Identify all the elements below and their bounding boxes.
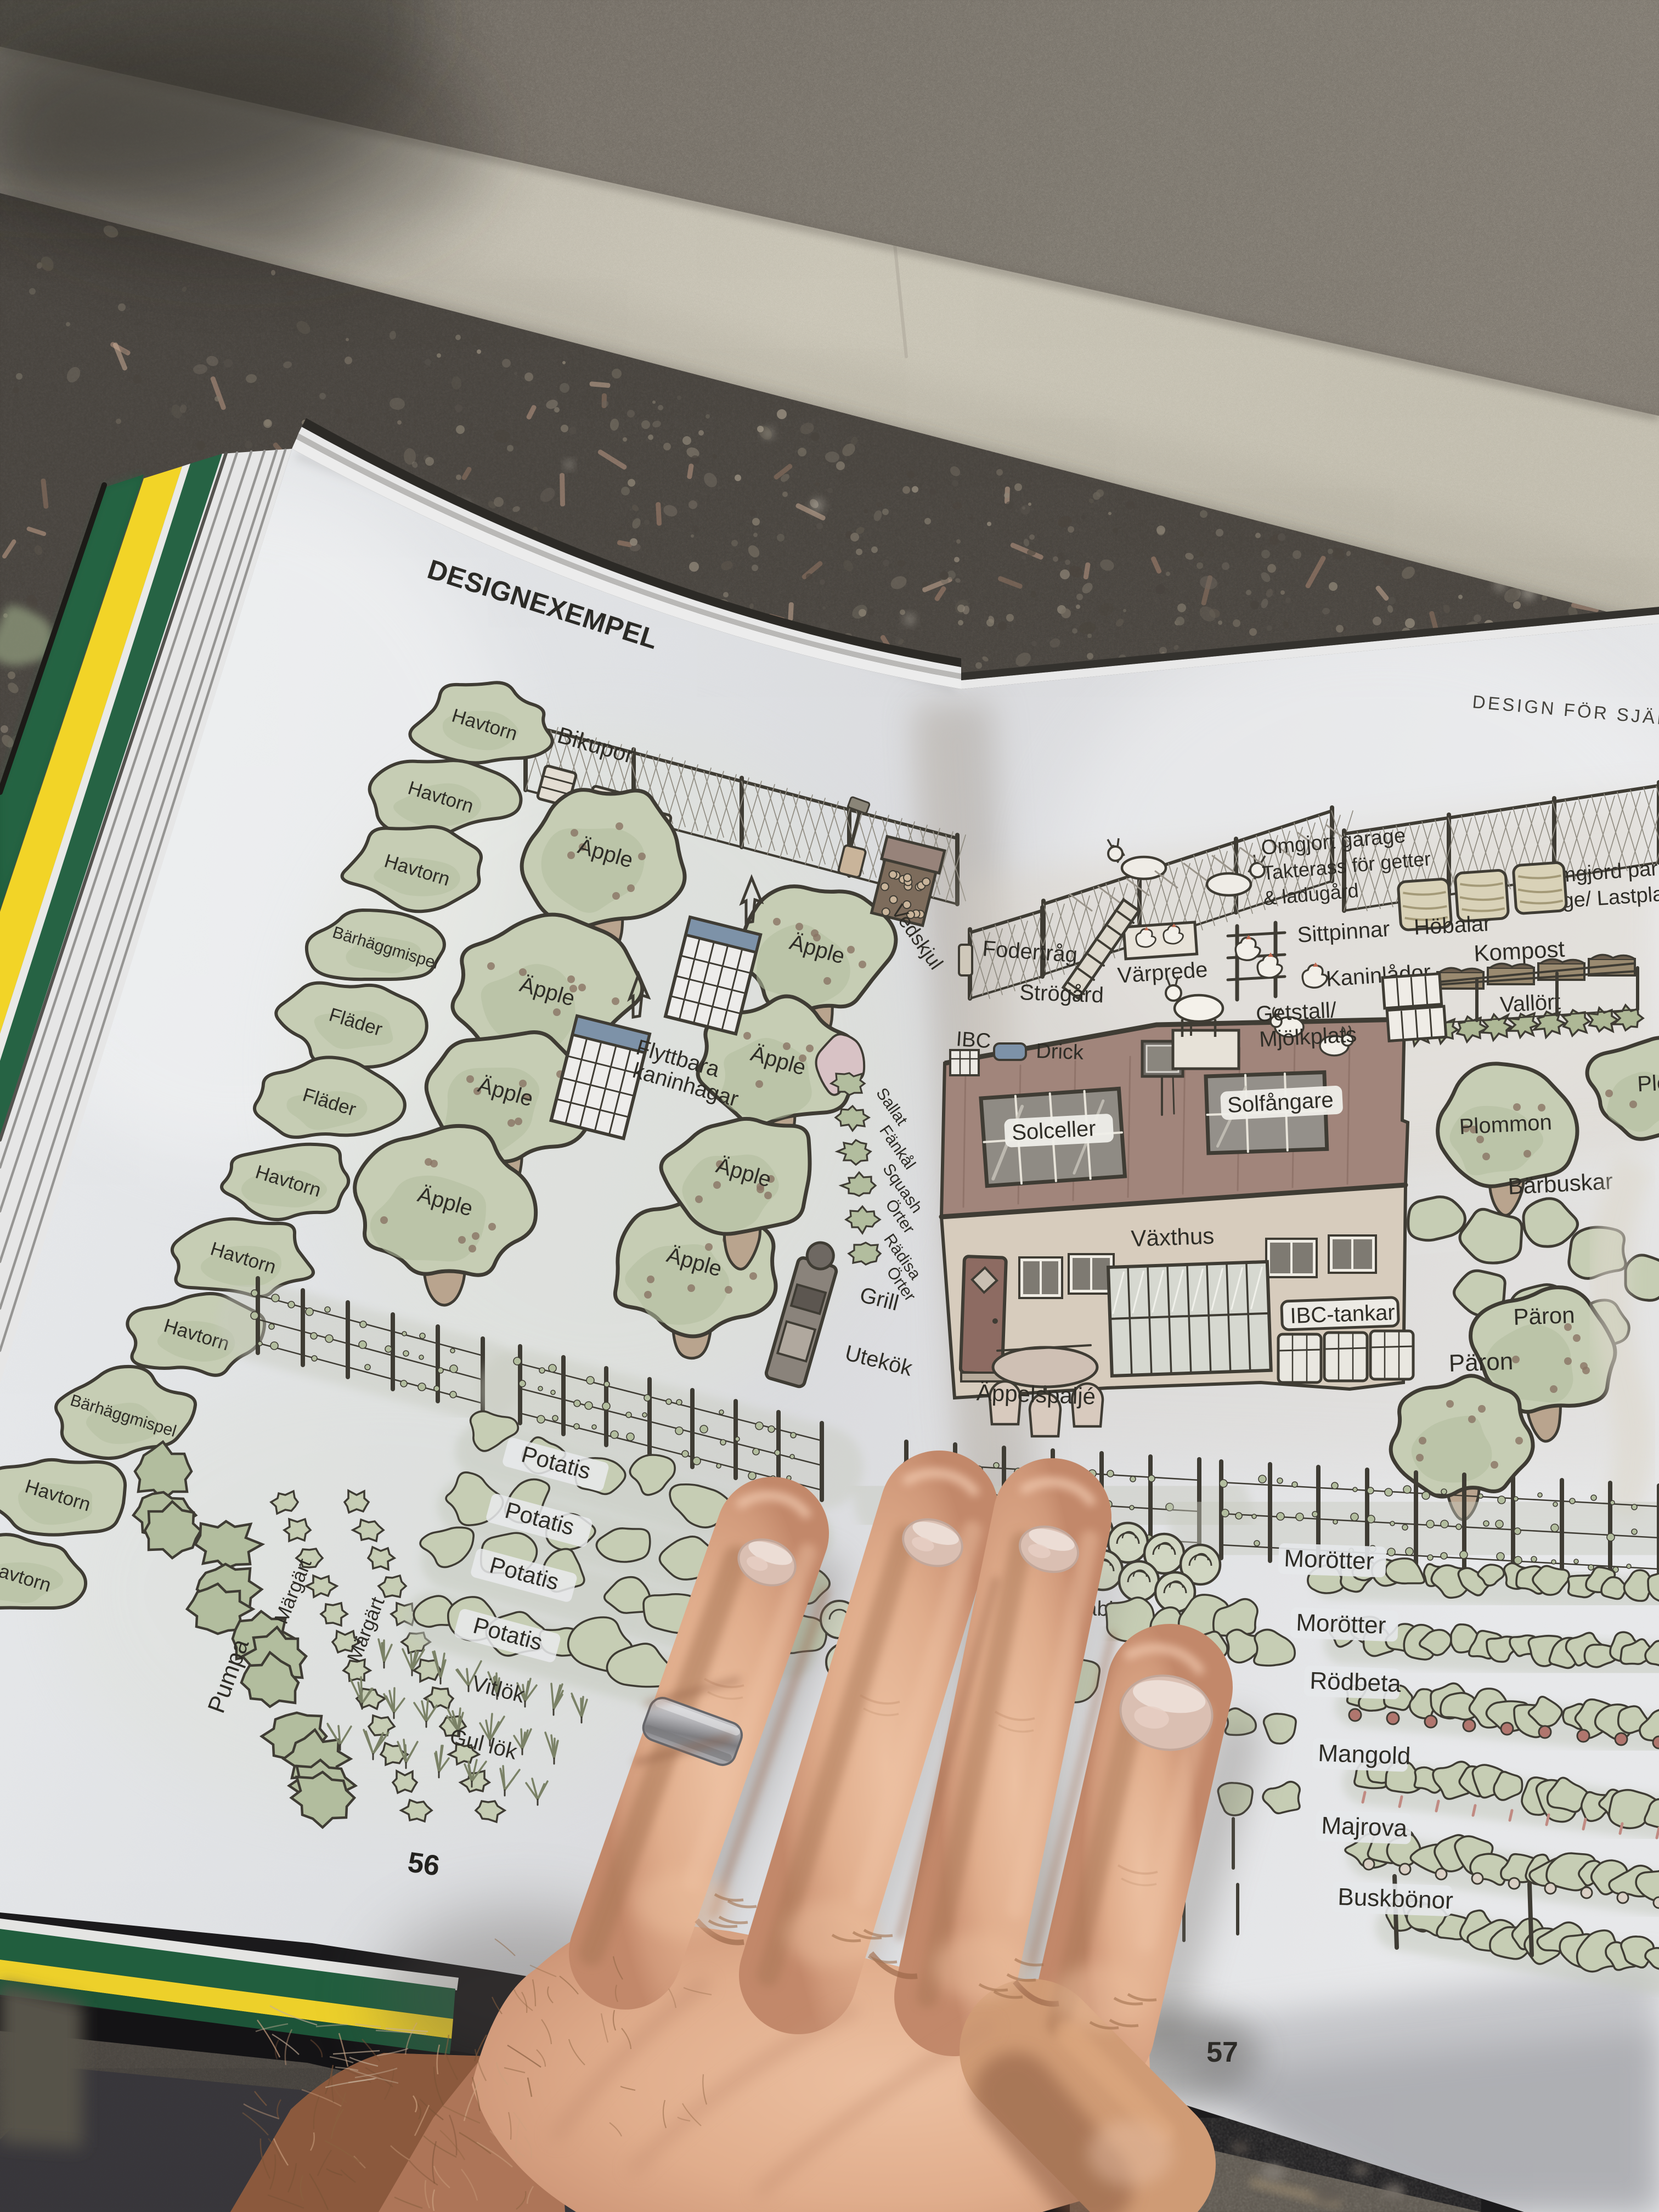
svg-text:Höbalar: Höbalar bbox=[1413, 911, 1491, 939]
svg-text:Mjölkplats: Mjölkplats bbox=[1259, 1023, 1357, 1052]
svg-text:Rödbeta: Rödbeta bbox=[1310, 1667, 1402, 1697]
svg-text:Solceller: Solceller bbox=[1011, 1116, 1096, 1145]
svg-text:Äppelspaljé: Äppelspaljé bbox=[976, 1379, 1096, 1409]
svg-text:Getstall/: Getstall/ bbox=[1255, 998, 1338, 1026]
svg-text:Buskbönor: Buskbönor bbox=[1338, 1883, 1454, 1914]
svg-text:Strögård: Strögård bbox=[1019, 980, 1104, 1007]
svg-text:Morötter: Morötter bbox=[1284, 1545, 1374, 1575]
svg-text:Växthus: Växthus bbox=[1131, 1223, 1215, 1251]
svg-text:Morötter: Morötter bbox=[1296, 1609, 1386, 1639]
svg-text:IBC-tankar: IBC-tankar bbox=[1290, 1300, 1396, 1328]
svg-text:Vallört: Vallört bbox=[1499, 990, 1561, 1017]
svg-text:Plo: Plo bbox=[1637, 1071, 1659, 1097]
svg-text:56: 56 bbox=[406, 1846, 442, 1882]
svg-text:Päron: Päron bbox=[1448, 1348, 1514, 1377]
svg-text:Plommon: Plommon bbox=[1459, 1110, 1553, 1139]
svg-text:Drick: Drick bbox=[1036, 1040, 1085, 1064]
svg-text:Päron: Päron bbox=[1513, 1302, 1576, 1330]
svg-text:Majrova: Majrova bbox=[1321, 1812, 1408, 1842]
svg-text:Mangold: Mangold bbox=[1318, 1740, 1411, 1770]
svg-text:Bärbuskar: Bärbuskar bbox=[1507, 1168, 1613, 1199]
